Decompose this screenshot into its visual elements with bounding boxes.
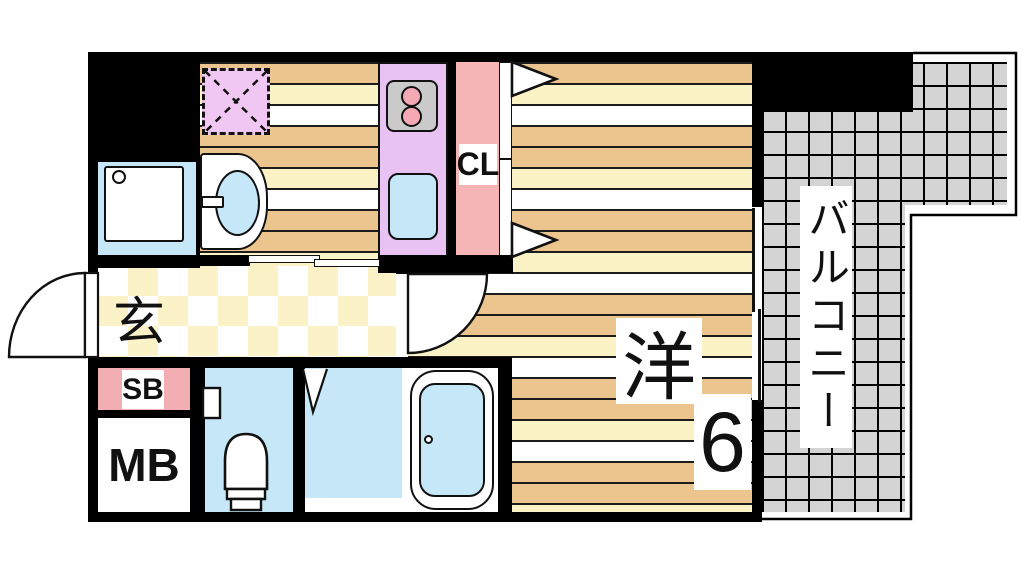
wall-bath-right [498, 357, 512, 512]
kitchen-sink [388, 173, 438, 240]
floor-plan: MB [0, 0, 1024, 576]
entrance-door-swing [9, 273, 85, 357]
wall-bottom [88, 512, 762, 522]
window-sash-lower [758, 309, 761, 402]
entrance-opening [88, 273, 98, 357]
entrance-label: 玄 [108, 289, 170, 345]
shower-floor [305, 368, 402, 498]
wall-counter-closet [448, 62, 456, 257]
western-room-size-text: 6 [699, 394, 746, 491]
burner-icon [401, 86, 422, 107]
refrigerator-space [202, 68, 270, 135]
faucet-icon [201, 196, 224, 208]
burner-icon [401, 106, 422, 127]
sliding-door-panel [248, 255, 320, 263]
balcony-label: バルコニー [800, 186, 852, 448]
balcony-label-text: バルコニー [796, 197, 857, 437]
toilet-room [205, 368, 293, 512]
window-sash-upper [752, 208, 755, 312]
doorway-threshold [396, 274, 408, 357]
meter-box-label: MB [108, 438, 180, 492]
western-room-size-label: 6 [694, 394, 751, 490]
washer-drain-icon [112, 170, 126, 184]
wall-shoebox-right [190, 357, 205, 512]
western-room-label-text: 洋 [622, 308, 696, 415]
wall-toilet-right [293, 357, 305, 512]
wall-sb-mb-divider [98, 410, 190, 418]
meter-box: MB [98, 418, 190, 512]
shoe-box-label: SB [122, 370, 164, 409]
closet-label: CL [459, 144, 497, 185]
wall-top [88, 52, 762, 62]
shoe-box-label-text: SB [122, 373, 164, 407]
wall-balcony-top-block [752, 52, 913, 112]
sliding-door-panel [314, 259, 380, 267]
wall-right-lower [752, 400, 762, 512]
bathtub-drain-icon [424, 435, 433, 444]
closet-label-text: CL [457, 146, 500, 183]
entrance-label-text: 玄 [113, 280, 165, 355]
wall-washroom-front [88, 255, 250, 266]
western-room-label: 洋 [616, 318, 702, 404]
closet-door-track-split [499, 158, 512, 160]
